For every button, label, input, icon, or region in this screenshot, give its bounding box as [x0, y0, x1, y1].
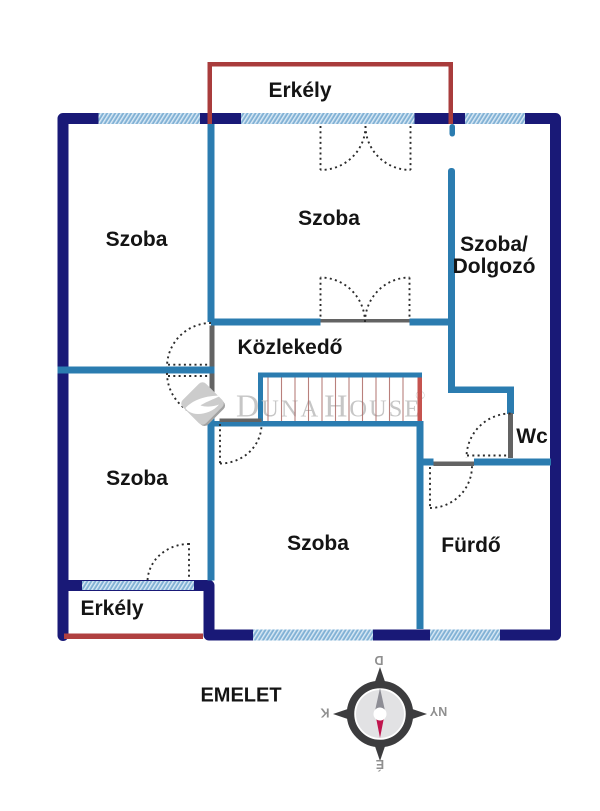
- svg-text:Dolgozó: Dolgozó: [453, 255, 536, 278]
- svg-text:Szoba: Szoba: [106, 228, 168, 251]
- svg-text:Szoba: Szoba: [298, 207, 360, 230]
- svg-text:K: K: [320, 706, 329, 720]
- svg-text:NY: NY: [429, 704, 447, 718]
- svg-text:EMELET: EMELET: [200, 685, 281, 707]
- svg-text:Szoba/: Szoba/: [460, 233, 528, 256]
- svg-text:Szoba: Szoba: [106, 467, 168, 490]
- svg-text:Szoba: Szoba: [287, 532, 349, 555]
- svg-text:É: É: [376, 757, 384, 772]
- svg-text:Wc: Wc: [516, 425, 548, 448]
- svg-text:Erkély: Erkély: [80, 597, 143, 620]
- svg-text:Közlekedő: Közlekedő: [237, 336, 342, 359]
- svg-text:Erkély: Erkély: [268, 79, 331, 102]
- svg-text:Fürdő: Fürdő: [441, 534, 500, 557]
- svg-text:D: D: [374, 653, 383, 667]
